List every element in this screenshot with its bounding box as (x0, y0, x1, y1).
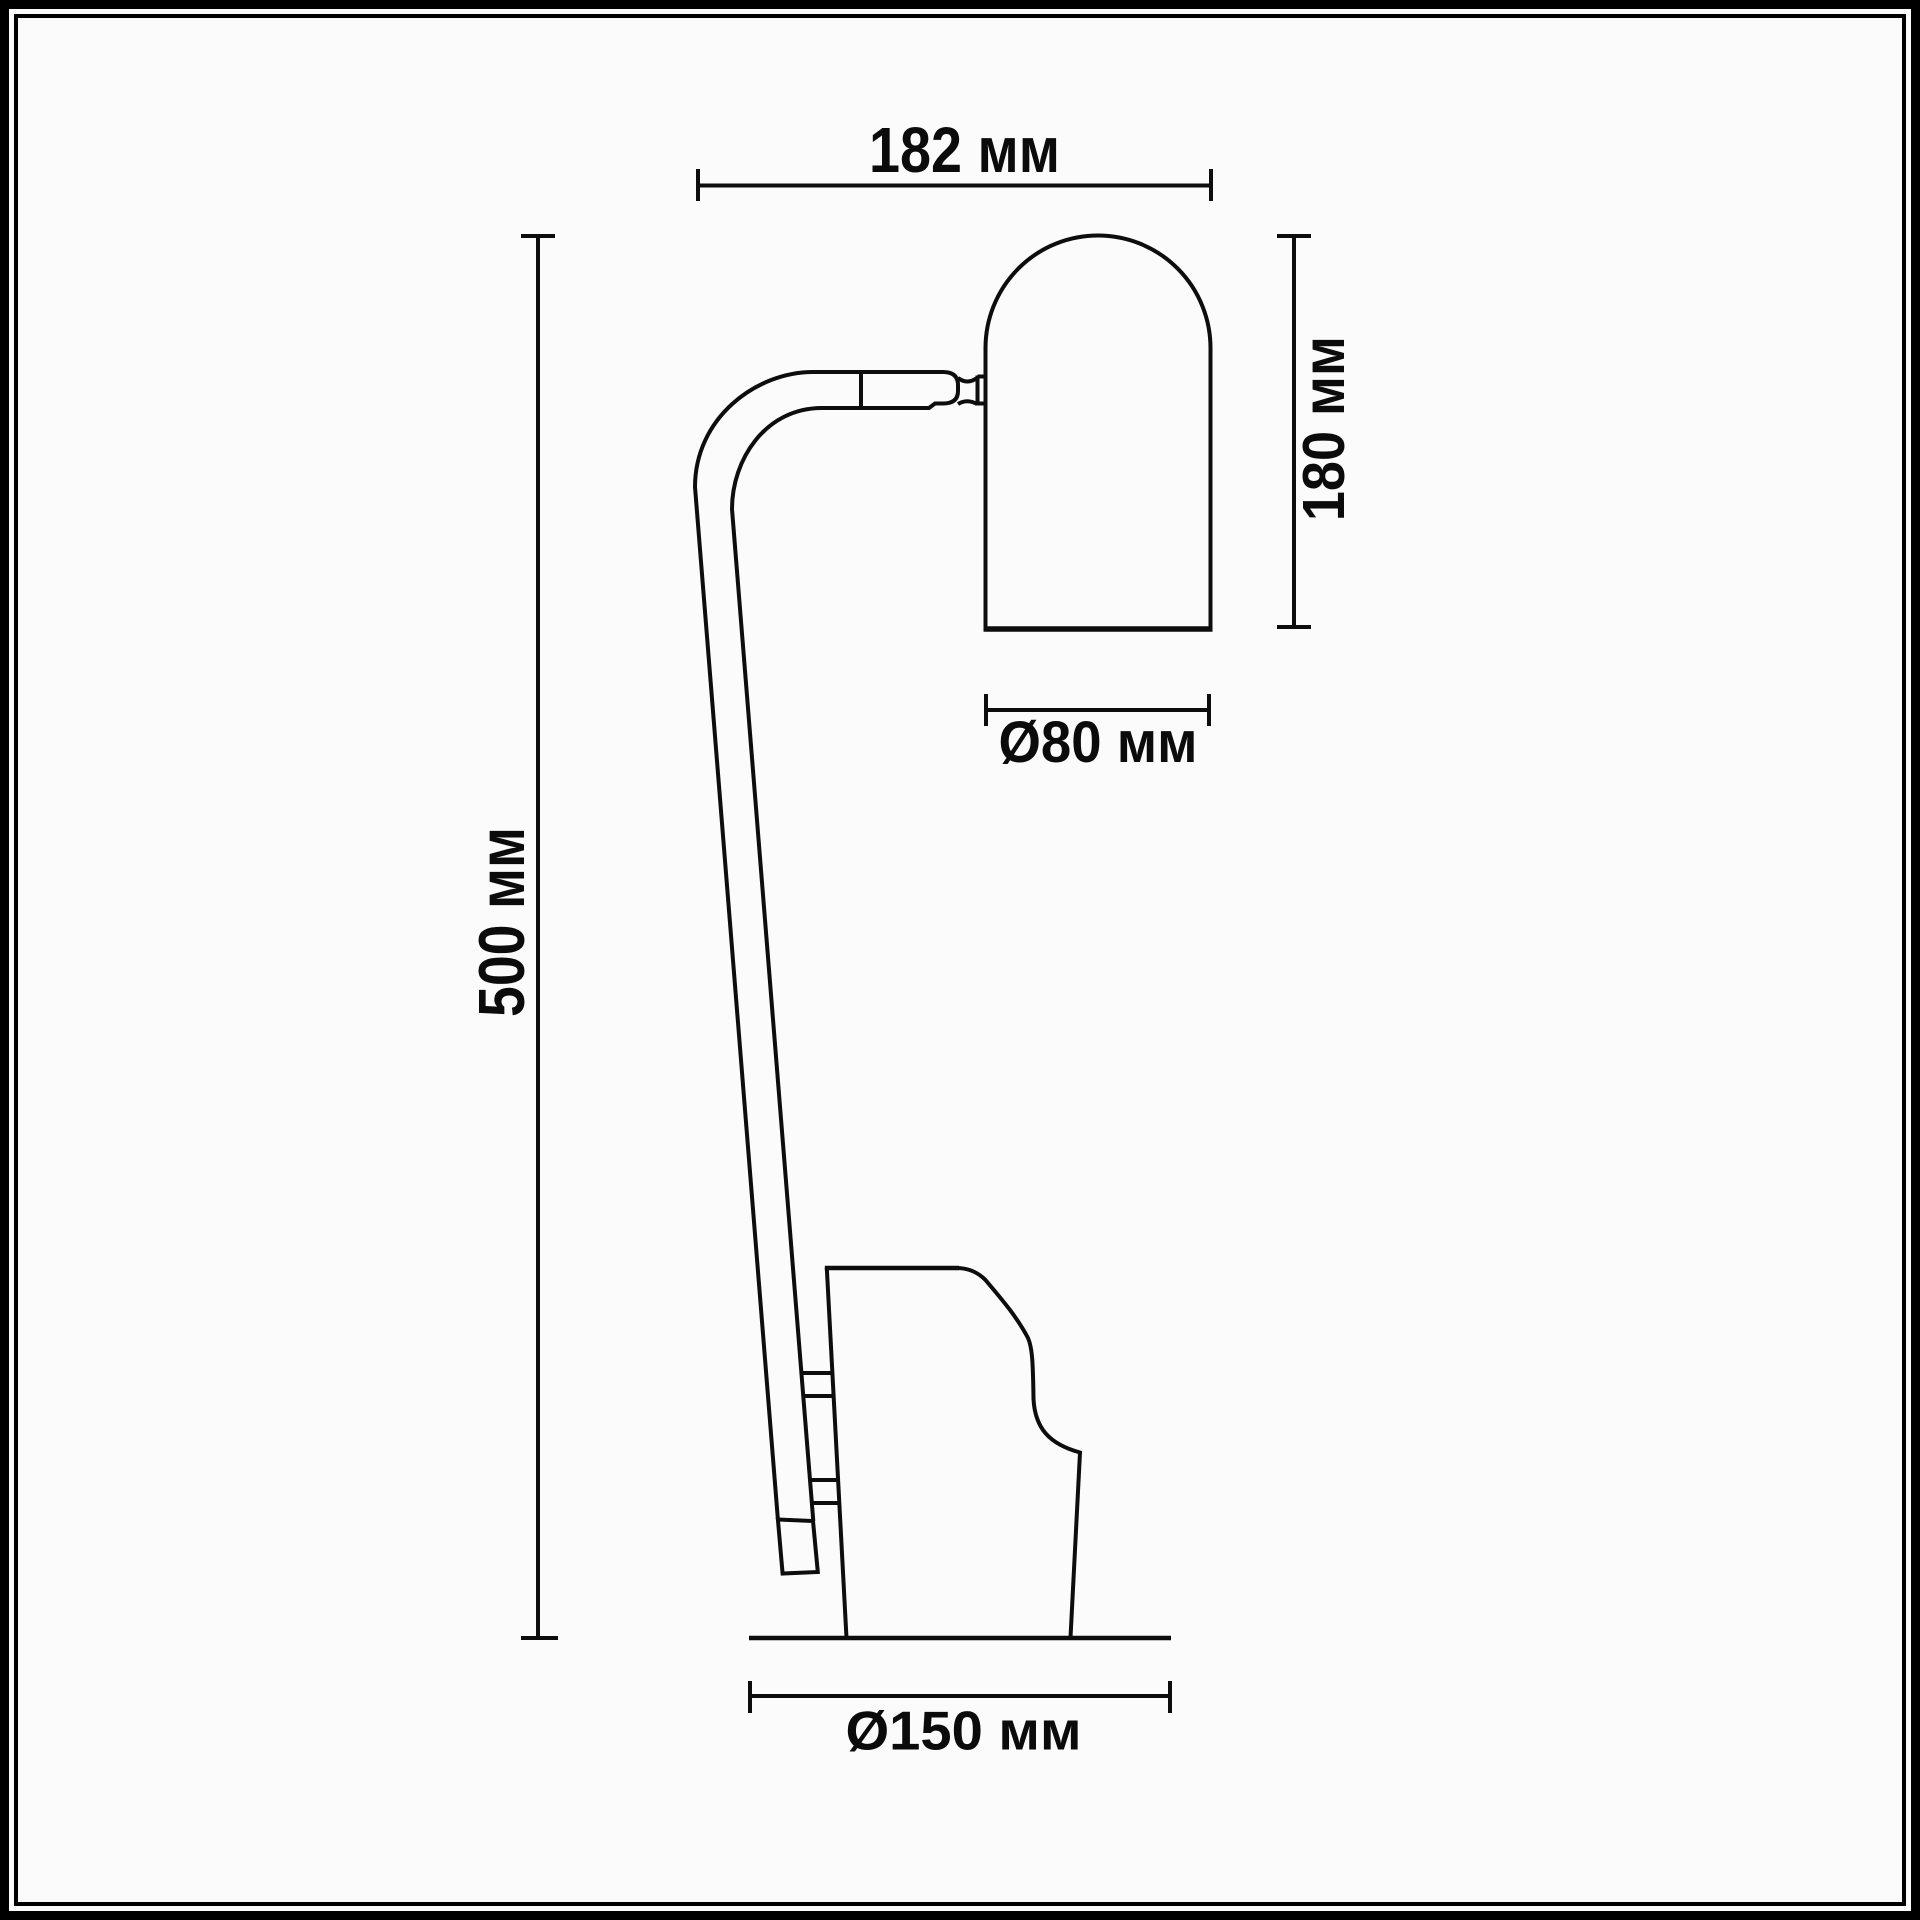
svg-text:Ø80 мм: Ø80 мм (999, 710, 1198, 775)
svg-text:Ø150 мм: Ø150 мм (846, 1701, 1082, 1762)
svg-text:500 мм: 500 мм (465, 827, 538, 1017)
svg-text:182 мм: 182 мм (869, 114, 1060, 186)
svg-text:180 мм: 180 мм (1290, 336, 1357, 521)
